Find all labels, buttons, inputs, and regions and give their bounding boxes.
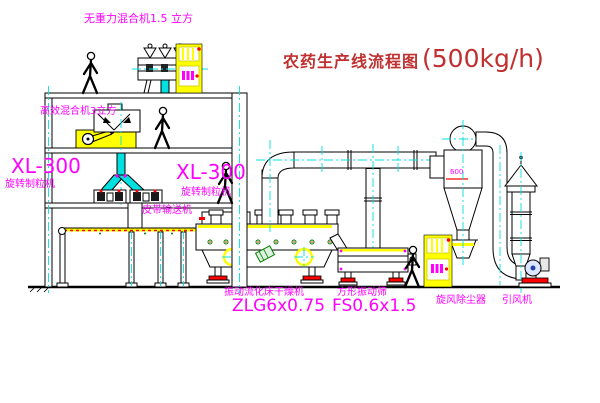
platform-right-column [232,86,247,293]
label-belt-conveyor: 皮带输送机 [142,206,192,216]
title-text: 农药生产线流程图 [283,48,419,72]
label-granulator-left-model: XL-300 [11,156,81,176]
label-cyclone: 旋风除尘器 [436,296,486,306]
label-granulator-left-name: 旋转制粒机 [5,180,55,190]
worker-mid-floor [155,107,169,148]
worker-top-floor [83,52,97,93]
label-fan: 引风机 [502,296,532,306]
control-cabinet-1 [176,44,202,93]
label-granulator-right-model: XL-300 [176,162,246,182]
label-dryer-model: ZLG6x0.75 [232,298,325,315]
label-high-eff-mixer: 高效混合机3立方 [40,107,116,117]
granulator-left [94,190,126,204]
drawing-title: 农药生产线流程图 (500kg/h) [283,44,544,73]
cad-flow-diagram: 农药生产线流程图 (500kg/h) 无重力混合机1.5 立方 高效混合机3立方… [0,0,600,403]
title-capacity: (500kg/h) [422,44,544,73]
label-sieve-model: FS0.6x1.5 [332,298,416,315]
granulator-discharge-chute [128,203,142,228]
label-gravity-mixer: 无重力混合机1.5 立方 [84,13,193,24]
label-cyclone-dim: 600 [450,169,463,176]
dryer-feet [207,267,323,283]
control-cabinet-2 [424,235,452,287]
granulator-right [130,190,162,204]
label-granulator-right-name: 旋转制粒机 [181,188,231,198]
